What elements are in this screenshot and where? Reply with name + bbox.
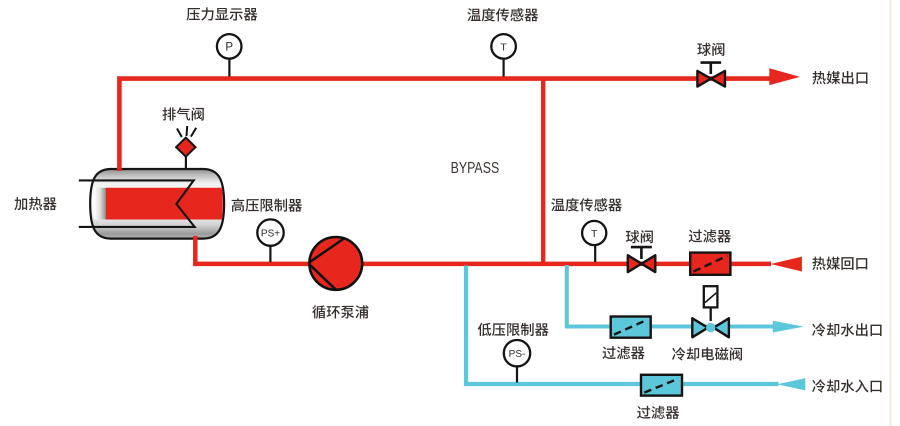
svg-text:T: T bbox=[500, 41, 507, 53]
svg-text:PS-: PS- bbox=[509, 349, 526, 360]
svg-text:PS+: PS+ bbox=[261, 229, 280, 240]
svg-text:P: P bbox=[225, 42, 233, 54]
svg-text:T: T bbox=[591, 228, 598, 240]
svg-text:BYPASS: BYPASS bbox=[451, 160, 500, 177]
